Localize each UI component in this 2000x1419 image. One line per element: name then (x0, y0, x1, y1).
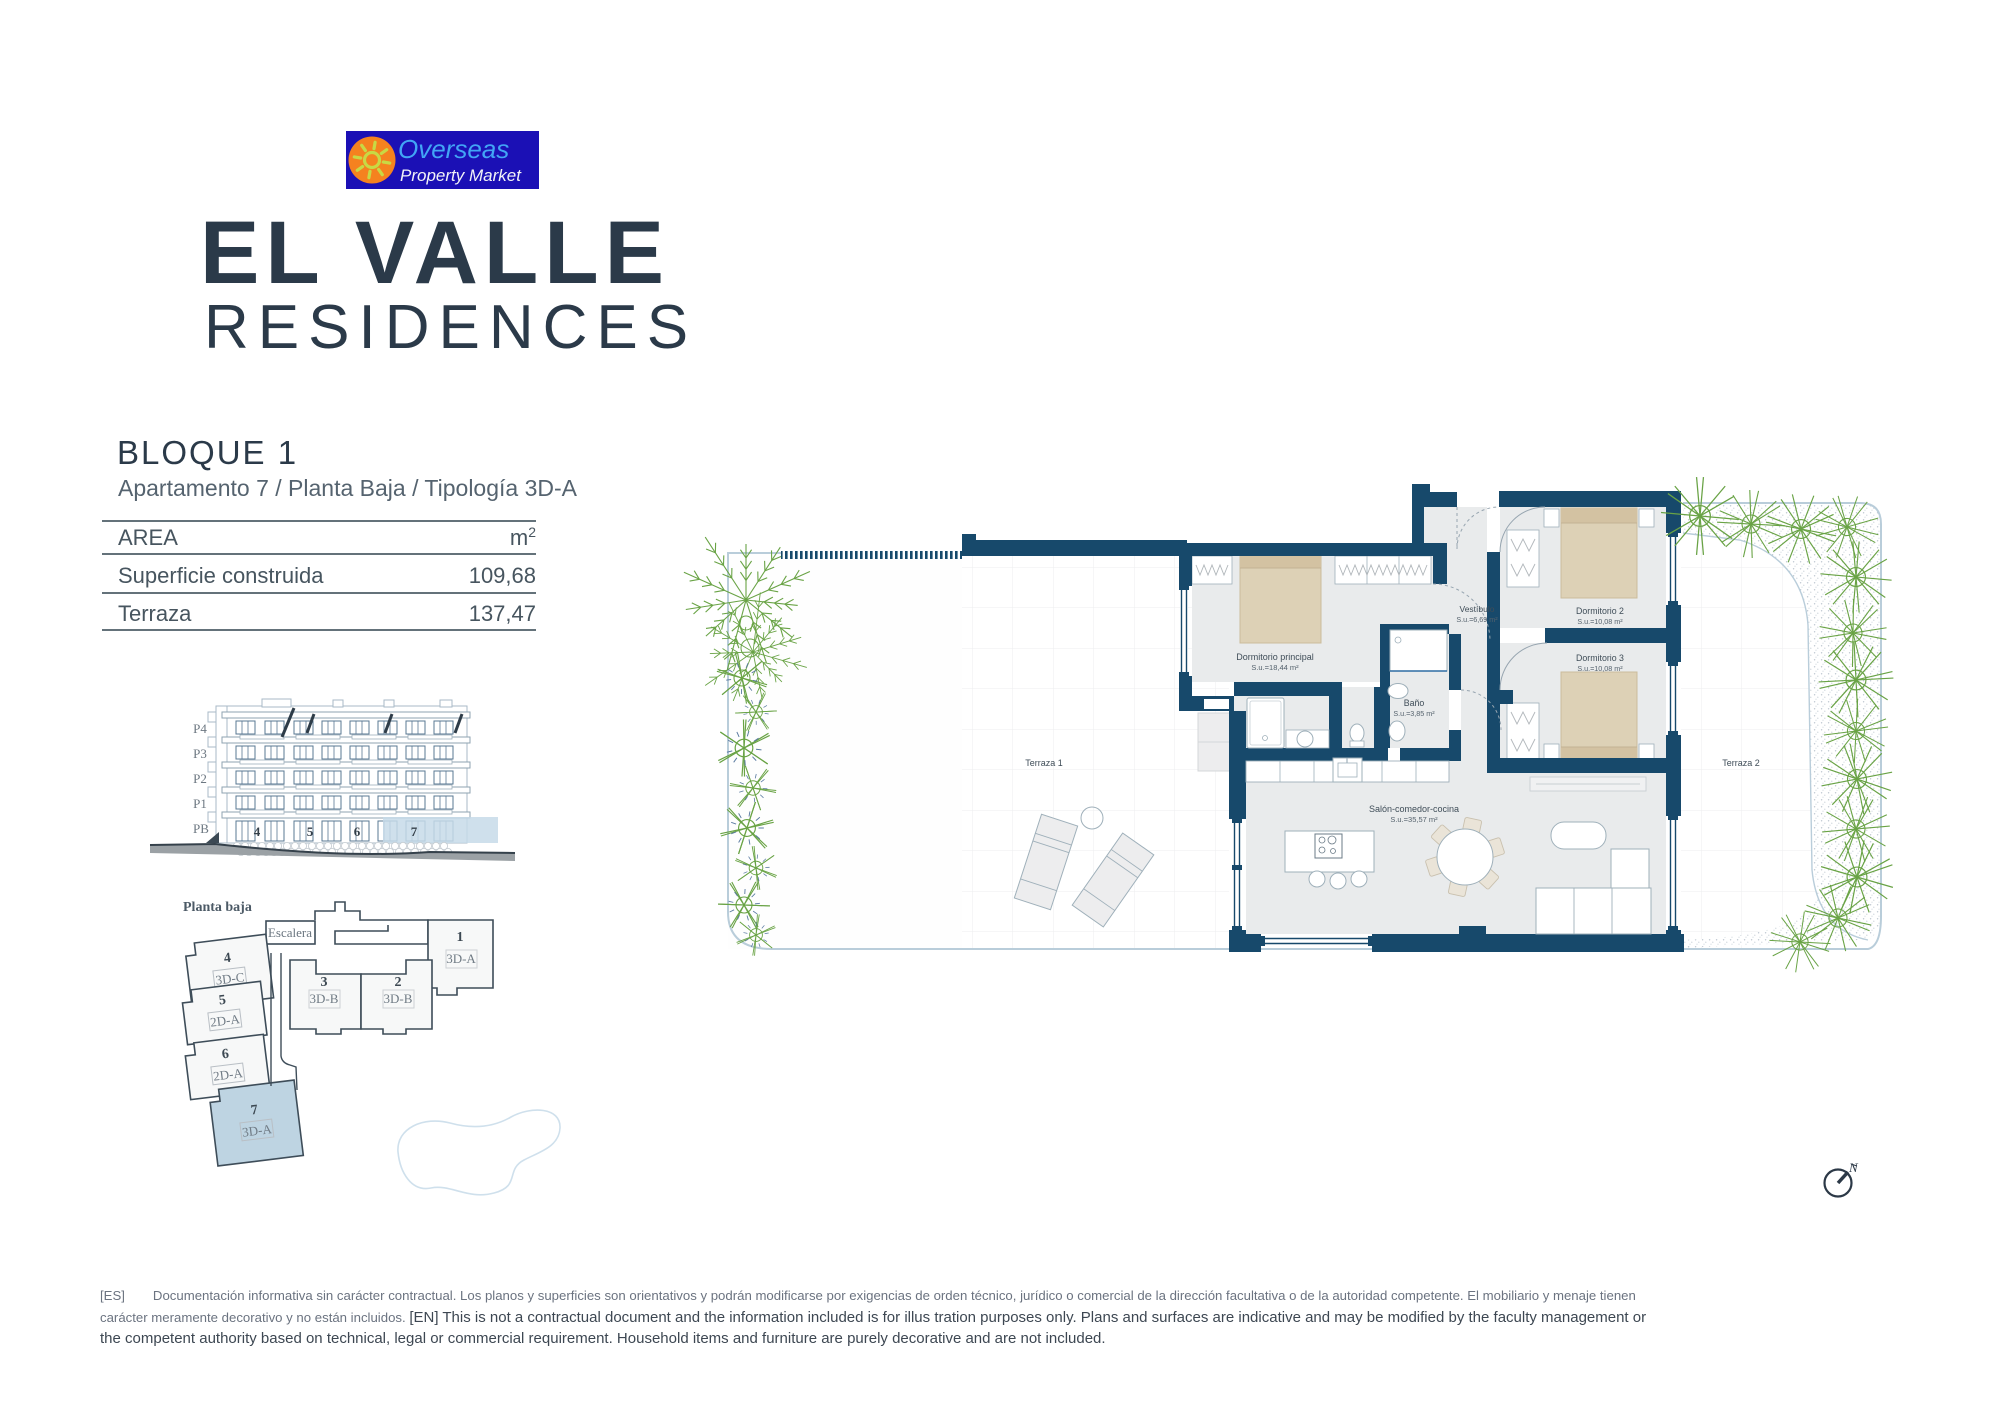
svg-text:AREA: AREA (118, 525, 178, 550)
svg-text:137,47: 137,47 (469, 601, 536, 626)
svg-text:3D-A: 3D-A (446, 951, 476, 966)
svg-text:S.u.=3,85 m²: S.u.=3,85 m² (1393, 709, 1435, 718)
svg-text:S.u.=6,69 m²: S.u.=6,69 m² (1456, 615, 1498, 624)
svg-text:3D-B: 3D-B (384, 991, 413, 1006)
svg-text:the competent authority based: the competent authority based on technic… (100, 1330, 1106, 1347)
svg-text:3: 3 (321, 975, 328, 990)
svg-text:BLOQUE 1: BLOQUE 1 (117, 434, 298, 471)
svg-text:P3: P3 (193, 746, 207, 761)
svg-text:Dormitorio 3: Dormitorio 3 (1576, 653, 1624, 663)
svg-text:Dormitorio 2: Dormitorio 2 (1576, 606, 1624, 616)
svg-text:Escalera: Escalera (268, 925, 312, 940)
svg-text:N: N (1848, 1160, 1859, 1175)
svg-text:3D-B: 3D-B (310, 991, 339, 1006)
svg-text:Salón-comedor-cocina: Salón-comedor-cocina (1369, 804, 1459, 814)
svg-text:Baño: Baño (1404, 698, 1425, 708)
svg-text:P4: P4 (193, 721, 207, 736)
svg-text:Superficie construida: Superficie construida (118, 563, 324, 588)
svg-text:Terraza 2: Terraza 2 (1722, 758, 1760, 768)
svg-text:Planta baja: Planta baja (183, 900, 252, 915)
svg-text:4: 4 (254, 824, 261, 839)
svg-text:1: 1 (457, 930, 464, 945)
svg-text:S.u.=18,44 m²: S.u.=18,44 m² (1251, 663, 1299, 672)
svg-text:7: 7 (411, 824, 418, 839)
svg-text:P1: P1 (193, 796, 207, 811)
svg-text:5: 5 (307, 824, 314, 839)
svg-text:S.u.=10,08 m²: S.u.=10,08 m² (1577, 617, 1623, 626)
svg-text:6: 6 (354, 824, 361, 839)
svg-text:P2: P2 (193, 771, 207, 786)
svg-text:109,68: 109,68 (469, 563, 536, 588)
svg-text:Property Market: Property Market (400, 166, 522, 185)
svg-text:EL VALLE: EL VALLE (200, 202, 670, 302)
svg-text:Vestíbulo: Vestíbulo (1460, 604, 1495, 614)
svg-text:carácter meramente decorativo: carácter meramente decorativo y no están… (100, 1309, 1646, 1326)
svg-text:[ES]Documentación informativa: [ES]Documentación informativa sin caráct… (100, 1288, 1636, 1303)
svg-text:Terraza: Terraza (118, 601, 192, 626)
svg-text:RESIDENCES: RESIDENCES (204, 293, 697, 362)
svg-text:Dormitorio principal: Dormitorio principal (1236, 652, 1314, 662)
svg-text:S.u.=10,08 m²: S.u.=10,08 m² (1577, 664, 1623, 673)
svg-text:Terraza 1: Terraza 1 (1025, 758, 1063, 768)
svg-text:Apartamento 7 / Planta Baja /: Apartamento 7 / Planta Baja / Tipología … (118, 475, 578, 501)
svg-text:PB: PB (193, 821, 209, 836)
svg-text:2: 2 (395, 975, 402, 990)
svg-text:S.u.=35,57 m²: S.u.=35,57 m² (1390, 815, 1438, 824)
svg-text:Overseas: Overseas (398, 134, 509, 164)
